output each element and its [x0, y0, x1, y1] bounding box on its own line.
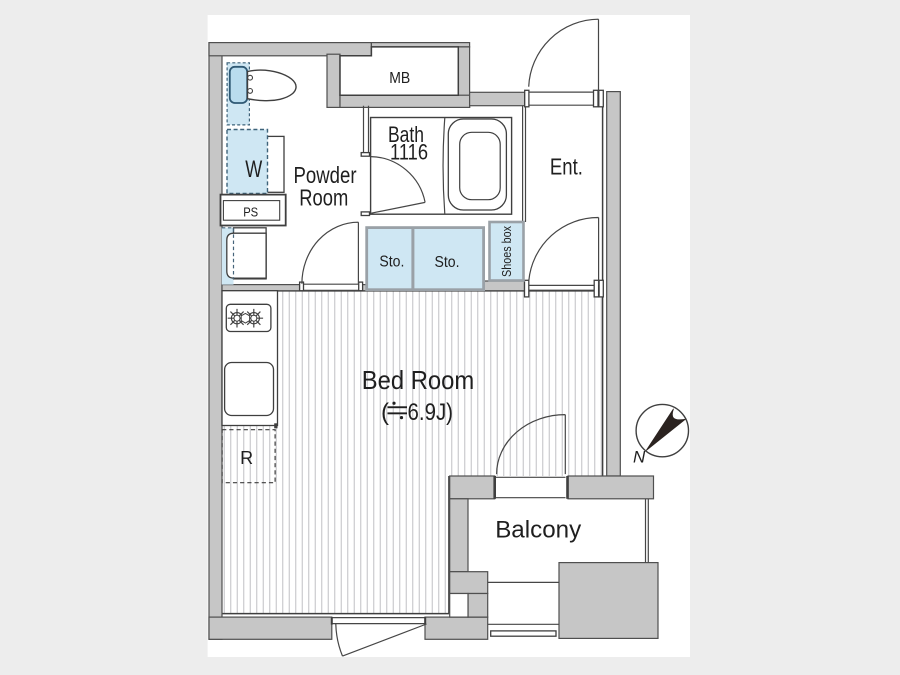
svg-text:MB: MB: [389, 70, 410, 87]
svg-text:Sto.: Sto.: [379, 253, 404, 270]
svg-text:1116: 1116: [390, 140, 428, 165]
svg-text:Ent.: Ent.: [550, 154, 583, 180]
svg-text:N: N: [633, 448, 646, 467]
svg-text:Shoes box: Shoes box: [499, 226, 514, 277]
svg-text:Balcony: Balcony: [495, 516, 582, 543]
svg-text:(: (: [381, 399, 389, 426]
svg-text:Sto.: Sto.: [435, 254, 460, 271]
svg-text:Bed Room: Bed Room: [362, 365, 475, 395]
svg-text:W: W: [245, 156, 262, 183]
svg-text:R: R: [240, 448, 253, 468]
svg-text:Room: Room: [299, 185, 348, 211]
svg-text:PS: PS: [243, 205, 258, 219]
svg-text:6.9J): 6.9J): [408, 399, 454, 426]
